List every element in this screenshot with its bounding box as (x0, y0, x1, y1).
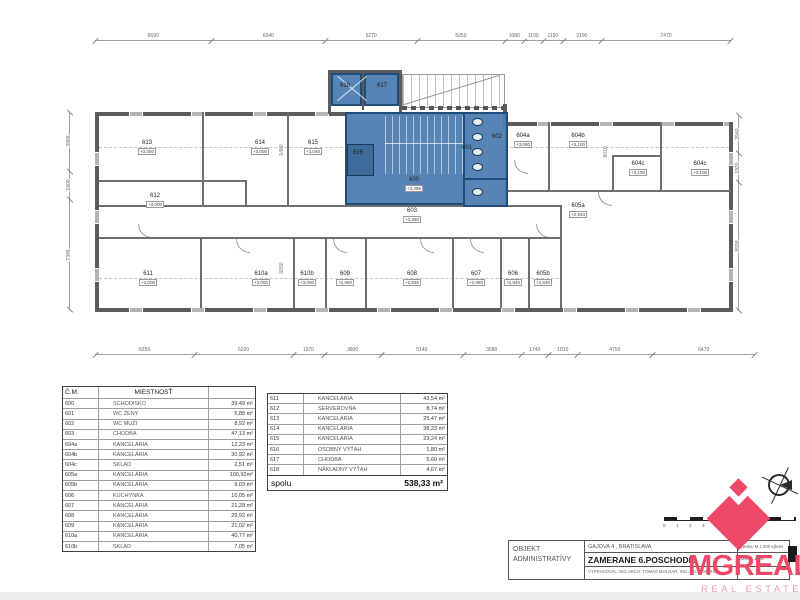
dimension-line-bottom: 6259622019703600514036801740181047506470 (95, 347, 755, 359)
table-row: 608KANCELÁRIA29,92 m² (63, 510, 255, 520)
dimension-value: 1100 (527, 33, 540, 39)
table-cell: 2,51 m² (208, 460, 255, 469)
table-cell: 608 (63, 511, 99, 520)
dimension-line-top: 669065405270505010801100115021907470 (95, 33, 731, 45)
table-cell: 603 (63, 430, 99, 439)
table-row: 614KANCELÁRIA38,23 m² (268, 424, 447, 434)
table-row: 604cSKLAD2,51 m² (63, 459, 255, 469)
table-cell: 21,02 m² (208, 522, 255, 531)
room-label-604a: 604a+3,080 (514, 133, 532, 148)
room-number: 614 (251, 140, 269, 146)
table-cell: 10,05 m² (208, 491, 255, 500)
dimension-value: 5140 (415, 347, 428, 353)
table-cell: KANCELÁRIA (304, 425, 400, 434)
dimension-value: 2540 (735, 128, 741, 141)
room-label-609: 609+2,980 (336, 271, 354, 286)
elevator-618 (331, 73, 362, 106)
dimension-value: 4750 (608, 347, 621, 353)
room-elevation: +2,980 (336, 279, 354, 286)
table-header-cell (208, 387, 255, 398)
room-label-610a: 610a+3,000 (252, 271, 270, 286)
door-arc (138, 224, 152, 238)
room-label-604b: 604b+3,100 (569, 133, 587, 148)
room-elevation: +2,835 (403, 279, 421, 286)
room-label-600: 600+3,385 (405, 177, 423, 192)
table-row: 617CHODBA5,60 m² (268, 454, 447, 464)
table-cell: 7,05 m² (208, 542, 255, 551)
table-cell: 613 (268, 414, 304, 423)
table-cell: 5,60 m² (400, 455, 447, 464)
table-cell: 616 (268, 445, 304, 454)
table-cell: 614 (268, 425, 304, 434)
dimension-value: 2190 (575, 33, 588, 39)
door-arc (333, 239, 347, 253)
table-cell: 601 (63, 409, 99, 418)
owner-line2: ADMINISTRATÍVY (513, 556, 571, 563)
interior-dimension-value: 5480 (279, 144, 285, 155)
room-label-608: 608+2,835 (403, 271, 421, 286)
room-elevation: +3,000 (251, 148, 269, 155)
partition (548, 122, 550, 190)
toilet-icon (472, 163, 483, 171)
table-cell: OSOBNÝ VÝŤAH (304, 445, 400, 454)
dimension-baseline (95, 40, 731, 41)
room-label-612: 612+3,000 (146, 193, 164, 208)
table-row: 605bKANCELÁRIA9,03 m² (63, 480, 255, 490)
room-number: 610b (298, 271, 316, 277)
table-row: 609KANCELÁRIA21,02 m² (63, 521, 255, 531)
table-row: 601WC ŽENY5,88 m² (63, 408, 255, 418)
table-row: 602WC MUŽI8,92 m² (63, 419, 255, 429)
table-cell: 611 (268, 394, 304, 403)
dimension-value: 7349 (66, 248, 72, 261)
table-cell: CHODBA (304, 455, 400, 464)
room-elevation: +3,385 (405, 185, 423, 192)
table-row: 600SCHODISKO39,49 m² (63, 398, 255, 408)
room-number: 618 (340, 83, 350, 89)
table-cell: 602 (63, 420, 99, 429)
room-label-606: 606+2,940 (504, 271, 522, 286)
partition (245, 180, 247, 205)
table-header-cell: Č.M. (63, 387, 99, 398)
room-number: 605b (534, 271, 552, 277)
table-cell: 610a (63, 532, 99, 541)
table-cell: KUCHYNKA (99, 491, 208, 500)
table-cell: KANCELÁRIA (304, 435, 400, 444)
room-label-616: 616 (353, 150, 363, 156)
floor-plan-sheet: { "sheet": { "title_block": { "owner_lin… (0, 0, 800, 600)
room-elevation: +3,100 (629, 169, 647, 176)
table-row: 603CHODBA47,13 m² (63, 429, 255, 439)
table-cell: 605b (63, 481, 99, 490)
dimension-value: 7470 (659, 33, 672, 39)
room-label-604c: 604c+3,100 (691, 161, 709, 176)
room-elevation: +3,080 (514, 141, 532, 148)
dimension-value: 5050 (454, 33, 467, 39)
table-row: 604aKANCELÁRIA12,23 m² (63, 439, 255, 449)
toilet-icon (472, 118, 483, 126)
room-label-611: 611+3,000 (139, 271, 157, 286)
table-cell: KANCELÁRIA (304, 394, 400, 403)
room-number: 607 (467, 271, 485, 277)
north-compass-icon (762, 468, 798, 504)
wall-bottom (95, 308, 733, 312)
room-number: 604c (629, 161, 647, 167)
elevator-616 (347, 144, 374, 176)
table-cell: 100,92m² (208, 471, 255, 480)
door-arc (598, 192, 612, 206)
partition (325, 239, 327, 308)
door-arc (236, 239, 250, 253)
mgreal-logo-tagline: REAL ESTATE (701, 584, 800, 595)
owner-line1: OBJEKT (513, 546, 540, 553)
dimension-value: 1080 (508, 33, 521, 39)
room-number: 616 (353, 150, 363, 156)
room-number: 604b (569, 133, 587, 139)
table-row: 606KUCHYNKA10,05 m² (63, 490, 255, 500)
room-number: 612 (146, 193, 164, 199)
wall-top-left (95, 112, 347, 116)
room-number: 605a (569, 203, 587, 209)
table-cell: SERVEROVŇA (304, 404, 400, 413)
table-cell: 29,92 m² (208, 511, 255, 520)
table-row: 618NÁKLADNÝ VÝŤAH4,67 m² (268, 464, 447, 474)
partition (200, 239, 202, 308)
room612-wall-top (99, 180, 247, 182)
table-cell: 606 (63, 491, 99, 500)
room-number: 606 (504, 271, 522, 277)
toilet-icon (472, 148, 483, 156)
room-elevation: +2,980 (467, 279, 485, 286)
table-cell: 21,28 m² (208, 501, 255, 510)
room-label-601: 601 (462, 145, 472, 151)
table-cell: KANCELÁRIA (99, 511, 208, 520)
room-label-614: 614+3,000 (251, 140, 269, 155)
dimension-baseline (738, 115, 739, 311)
room-elevation: +3,000 (146, 201, 164, 208)
table-cell: WC ŽENY (99, 409, 208, 418)
table-cell: 604b (63, 450, 99, 459)
table-row: 613KANCELÁRIA25,47 m² (268, 413, 447, 423)
table-cell: KANCELÁRIA (99, 501, 208, 510)
room-number: 613 (138, 140, 156, 146)
partition (287, 112, 289, 205)
toilet-icon (472, 188, 483, 196)
partition (365, 239, 367, 308)
wall-left (95, 112, 99, 312)
table-cell: KANCELÁRIA (99, 450, 208, 459)
dimension-value: 6470 (697, 347, 710, 353)
total-value: 538,33 m² (344, 478, 447, 488)
table-cell: SCHODISKO (99, 399, 208, 408)
room-elevation: +3,000 (252, 279, 270, 286)
partition (612, 155, 614, 190)
table-row: 607KANCELÁRIA21,28 m² (63, 500, 255, 510)
table-cell: 47,13 m² (208, 430, 255, 439)
exterior-stair-dashes (402, 106, 503, 110)
dimension-value: 3680 (485, 347, 498, 353)
table-cell: 615 (268, 435, 304, 444)
room-table-left: Č.M.MIESTNOSŤ600SCHODISKO39,49 m²601WC Ž… (62, 386, 256, 552)
table-cell: 5,88 m² (208, 409, 255, 418)
partition (202, 112, 204, 205)
dimension-value: 1970 (302, 347, 315, 353)
dimension-value: 6220 (237, 347, 250, 353)
wc-block-lower (463, 178, 508, 207)
table-cell: 8,74 m² (400, 404, 447, 413)
table-row: 611KANCELÁRIA43,54 m² (268, 394, 447, 403)
table-cell: NÁKLADNÝ VÝŤAH (304, 465, 400, 474)
table-cell: KANCELÁRIA (304, 414, 400, 423)
room-label-605a: 605a+2,940 (569, 203, 587, 218)
room-elevation: +3,000 (298, 279, 316, 286)
mgreal-logo: MGREAL (688, 551, 800, 581)
table-cell: 600 (63, 399, 99, 408)
room-number: 601 (462, 145, 472, 151)
interior-dimension-value: 8850 (279, 262, 285, 273)
table-row: 615KANCELÁRIA23,24 m² (268, 434, 447, 444)
table-cell: 607 (63, 501, 99, 510)
table-row: 610aKANCELÁRIA40,77 m² (63, 531, 255, 541)
table-row: 610bSKLAD7,05 m² (63, 541, 255, 551)
room-elevation: +3,000 (139, 279, 157, 286)
room-label-613: 613+3,060 (138, 140, 156, 155)
table-total-row: spolu538,33 m² (268, 475, 447, 490)
table-cell: 610b (63, 542, 99, 551)
room-label-602: 602 (492, 134, 502, 140)
footer-strip (0, 592, 800, 600)
partition (452, 239, 454, 308)
room-number: 611 (139, 271, 157, 277)
dimension-value: 3886 (66, 135, 72, 148)
partition (500, 239, 502, 308)
table-cell: KANCELÁRIA (99, 471, 208, 480)
table-cell: 1,80 m² (400, 445, 447, 454)
dimension-value: 1150 (546, 33, 559, 39)
room-elevation: +2,940 (534, 279, 552, 286)
table-cell: KANCELÁRIA (99, 522, 208, 531)
room-label-618: 618 (340, 83, 350, 89)
table-cell: 43,54 m² (400, 394, 447, 403)
room-number: 617 (377, 83, 387, 89)
room-elevation: +3,040 (304, 148, 322, 155)
table-cell: KANCELÁRIA (99, 532, 208, 541)
room-label-610b: 610b+3,000 (298, 271, 316, 286)
room-label-605b: 605b+2,940 (534, 271, 552, 286)
partition (660, 122, 662, 190)
table-cell: 604a (63, 440, 99, 449)
table-cell: 40,77 m² (208, 532, 255, 541)
room-elevation: +3,060 (138, 148, 156, 155)
table-cell: 23,24 m² (400, 435, 447, 444)
title-block-owner: OBJEKT ADMINISTRATÍVY (509, 541, 585, 579)
room-elevation: +3,100 (691, 169, 709, 176)
room-number: 604a (514, 133, 532, 139)
table-cell: KANCELÁRIA (99, 481, 208, 490)
door-arc (536, 224, 550, 238)
room-label-604c: 604c+3,100 (629, 161, 647, 176)
table-cell: 38,23 m² (400, 425, 447, 434)
partition (293, 239, 295, 308)
stair-treads (385, 116, 463, 174)
partition (612, 155, 660, 157)
scale-mark: 1 (676, 523, 679, 528)
room-number: 615 (304, 140, 322, 146)
partition (505, 190, 731, 192)
table-cell: 609 (63, 522, 99, 531)
dimension-value: 3600 (346, 347, 359, 353)
dimension-value: 6259 (138, 347, 151, 353)
room-number: 609 (336, 271, 354, 277)
table-cell: 8,92 m² (208, 420, 255, 429)
table-header-cell: MIESTNOSŤ (99, 387, 208, 398)
room-number: 600 (405, 177, 423, 183)
stair-landing (385, 143, 463, 144)
interior-dimension-value: 9010 (603, 146, 609, 157)
dimension-value: 5270 (365, 33, 378, 39)
scale-mark: 0 (663, 523, 666, 528)
corridor-617 (364, 73, 399, 106)
dimension-value: 8590 (735, 240, 741, 253)
dimension-value: 1920 (735, 161, 741, 174)
exterior-stair-hatch (402, 74, 505, 108)
table-cell: 9,03 m² (208, 481, 255, 490)
dimension-value: 1900 (66, 178, 72, 191)
table-cell: 30,92 m² (208, 450, 255, 459)
room-elevation: +3,100 (569, 141, 587, 148)
table-cell: 605a (63, 471, 99, 480)
table-cell: CHODBA (99, 430, 208, 439)
room-label-607: 607+2,980 (467, 271, 485, 286)
floor-plan: 613+3,060614+3,000615+3,040612+3,000611+… (0, 0, 800, 380)
table-cell: KANCELÁRIA (99, 440, 208, 449)
dimension-value: 1740 (528, 347, 541, 353)
dimension-value: 6690 (147, 33, 160, 39)
table-header-row: Č.M.MIESTNOSŤ (63, 387, 255, 398)
table-row: 605aKANCELÁRIA100,92m² (63, 470, 255, 480)
table-row: 612SERVEROVŇA8,74 m² (268, 403, 447, 413)
room-elevation: +3,380 (403, 216, 421, 223)
door-arc (420, 239, 434, 253)
table-cell: 604c (63, 460, 99, 469)
table-cell: 12,23 m² (208, 440, 255, 449)
room-elevation: +2,940 (504, 279, 522, 286)
corridor-wall-bottom (99, 237, 560, 239)
table-cell: 612 (268, 404, 304, 413)
toilet-icon (472, 133, 483, 141)
room-number: 604c (691, 161, 709, 167)
wall-top-right (503, 122, 733, 126)
table-cell: SKLAD (99, 460, 208, 469)
table-cell: SKLAD (99, 542, 208, 551)
room-label-617: 617 (377, 83, 387, 89)
room-number: 602 (492, 134, 502, 140)
dimension-value: 6540 (262, 33, 275, 39)
table-cell: WC MUŽI (99, 420, 208, 429)
scale-mark: 2 (689, 523, 692, 528)
table-cell: 617 (268, 455, 304, 464)
total-label: spolu (268, 478, 344, 488)
scale-mark: 3 (702, 523, 705, 528)
door-arc (514, 160, 528, 174)
door-arc (470, 239, 484, 253)
room-number: 610a (252, 271, 270, 277)
room-table-right: 611KANCELÁRIA43,54 m²612SERVEROVŇA8,74 m… (267, 393, 448, 491)
table-row: 616OSOBNÝ VÝŤAH1,80 m² (268, 444, 447, 454)
dimension-value: 1810 (556, 347, 569, 353)
room-label-615: 615+3,040 (304, 140, 322, 155)
table-cell: 618 (268, 465, 304, 474)
room-number: 603 (403, 208, 421, 214)
table-cell: 25,47 m² (400, 414, 447, 423)
room-elevation: +2,940 (569, 211, 587, 218)
partition (560, 205, 562, 308)
table-row: 604bKANCELÁRIA30,92 m² (63, 449, 255, 459)
partition (528, 239, 530, 308)
table-cell: 39,49 m² (208, 399, 255, 408)
table-cell: 4,67 m² (400, 465, 447, 474)
room-number: 608 (403, 271, 421, 277)
room-label-603: 603+3,380 (403, 208, 421, 223)
dimension-line-left: 388619007349 (62, 112, 74, 310)
centerline (99, 278, 559, 279)
wall-right (729, 122, 733, 312)
